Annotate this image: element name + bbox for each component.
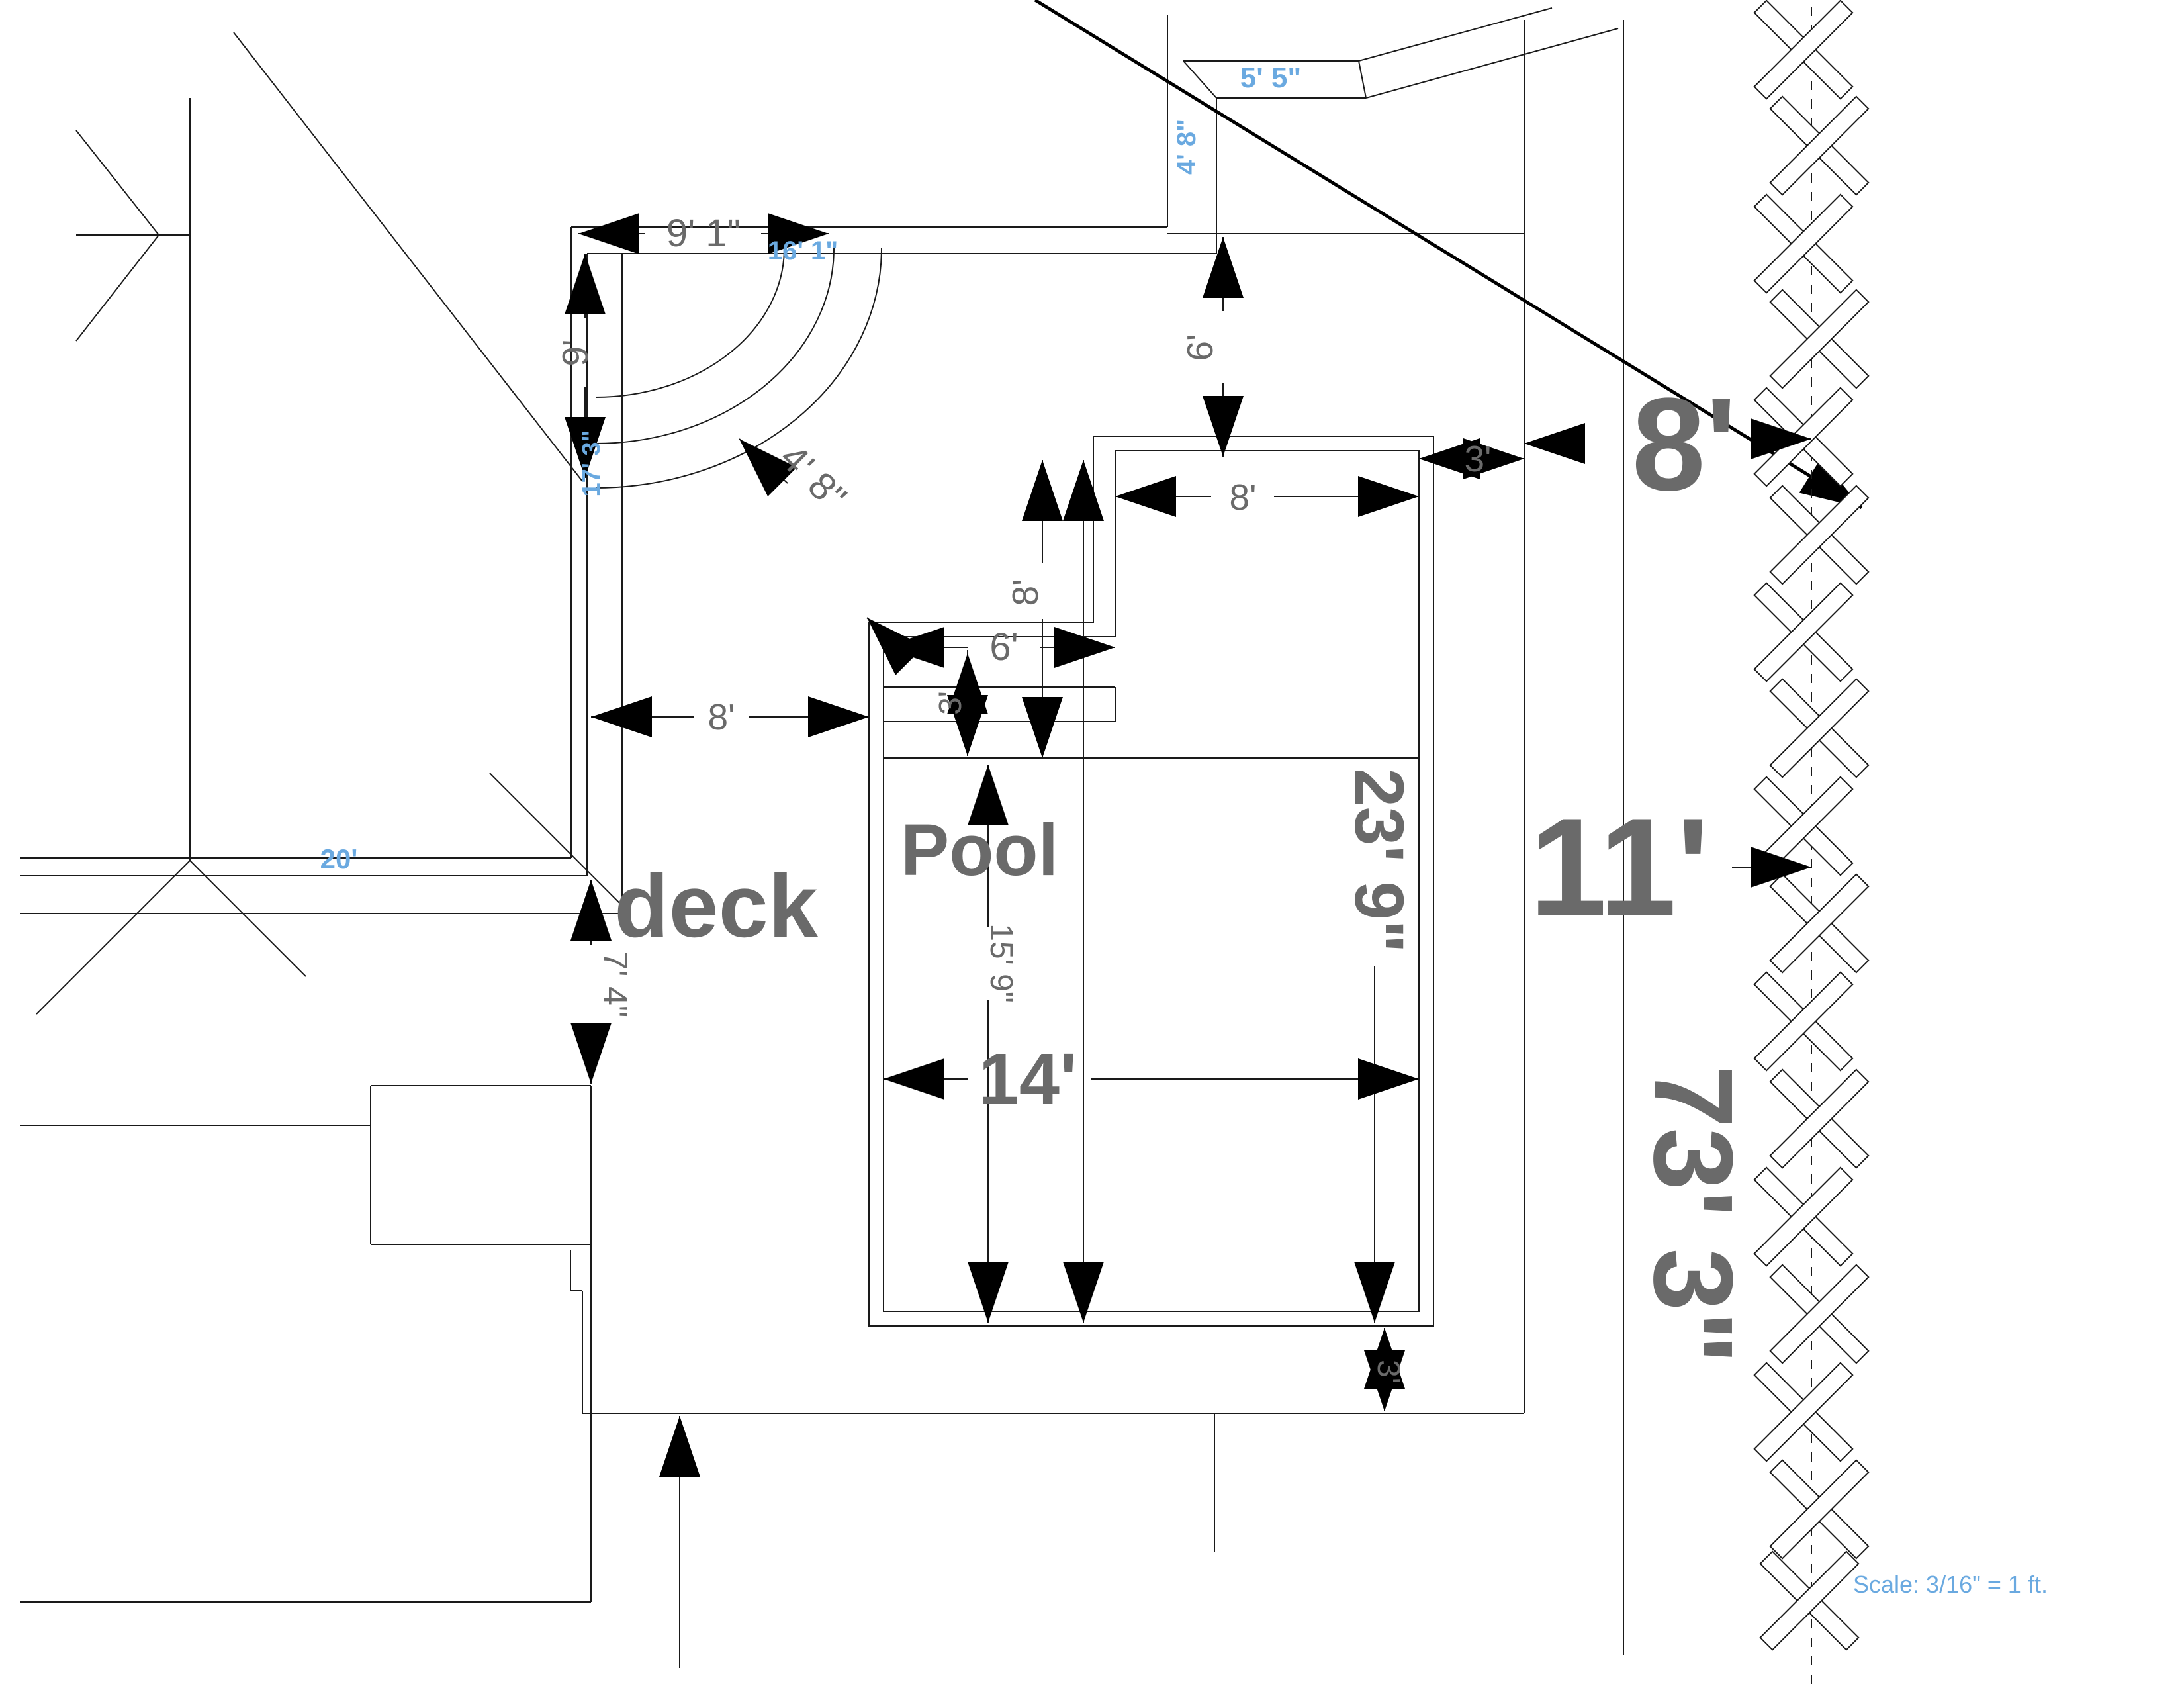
dim-top-width-alt-label: 16' 1"	[768, 236, 838, 265]
fence-x-icon	[1760, 1552, 1858, 1650]
fence-x-icon	[1770, 290, 1868, 388]
dim-step-depth-label: 3'	[933, 691, 968, 715]
dim-arrow	[808, 696, 869, 737]
dim-spa-depth: 8'	[1005, 460, 1063, 758]
dim-pool-length: 23' 9"	[1340, 768, 1418, 1323]
dim-pool-width: 14'	[884, 1039, 1419, 1120]
fence-x-icon	[1754, 583, 1852, 681]
dim-arrow	[1354, 1262, 1395, 1323]
dim-top-width: 9' 1" 16' 1"	[578, 212, 838, 265]
dim-arrow	[1115, 476, 1176, 517]
dim-deck-to-fence-mid: 11'	[1529, 789, 1811, 945]
dim-house-to-bay-label: 7' 4"	[596, 951, 634, 1018]
scale-note: Scale: 3/16" = 1 ft.	[1853, 1571, 2048, 1598]
dim-house-width: 20'	[320, 843, 358, 874]
fence-x-icon	[1754, 972, 1852, 1070]
dim-arc-radius-label: 4' 8"	[772, 436, 854, 519]
roof-corner-diagonal	[490, 773, 630, 914]
dim-arrow	[570, 1023, 612, 1084]
pool-steps	[884, 687, 1115, 722]
fence-x-icon	[1770, 1265, 1868, 1363]
dim-spa-width-label: 8'	[1229, 477, 1256, 518]
fence-x-icon	[1770, 679, 1868, 777]
dim-step-width: 6'	[884, 626, 1115, 669]
wall-left	[571, 227, 622, 914]
dim-pool-inner-length-label: 15' 9"	[983, 923, 1019, 1003]
dim-wing-width-label: 5' 5"	[1240, 62, 1302, 94]
dim-left-depth-alt-label: 17' 3"	[578, 430, 606, 496]
dim-spa-width: 8'	[1115, 476, 1419, 518]
dim-pool-length-inner-line	[1063, 460, 1104, 1323]
dim-arrow	[1022, 697, 1063, 758]
dim-arrow	[578, 213, 639, 254]
dim-top-width-label: 9' 1"	[666, 212, 741, 255]
deck-left-jog	[570, 1250, 582, 1413]
dim-arrow	[1358, 476, 1419, 517]
dim-arrow	[884, 1058, 944, 1100]
dim-spa-depth-label: 8'	[1005, 579, 1046, 606]
dim-pool-width-label: 14'	[979, 1039, 1077, 1120]
dim-pool-to-deck-bottom-label: 3'	[1371, 1360, 1406, 1383]
fence-x-icon	[1770, 874, 1868, 972]
dim-pool-length-label: 23' 9"	[1340, 768, 1418, 953]
fence-x-icon	[1754, 1168, 1852, 1266]
dim-arrow	[1063, 460, 1104, 521]
arc-inner	[596, 248, 784, 397]
dimensions: 9' 1" 16' 1" 9' 17' 3" 4' 8" 5' 5" 4' 8"…	[320, 62, 1811, 1668]
property-line	[1035, 0, 1872, 525]
dim-step-width-label: 6'	[989, 626, 1018, 669]
leader-arrow	[659, 1416, 700, 1477]
dim-arc-radius: 4' 8"	[725, 424, 925, 675]
roof-eave-diagonal	[234, 32, 582, 481]
fence-x-icon	[1770, 97, 1868, 195]
dim-arrow	[1358, 1058, 1419, 1100]
dim-left-depth-label: 9'	[555, 339, 596, 366]
dim-house-width-label: 20'	[320, 843, 358, 874]
roof-hip-lower	[36, 861, 306, 1014]
fence-x-icon	[1754, 195, 1852, 293]
roof-hip-upper	[76, 130, 190, 341]
dim-arrow	[968, 1262, 1009, 1323]
deck-label: deck	[614, 856, 819, 956]
wall-lower-wing	[20, 1086, 591, 1602]
dim-house-to-pool-label: 6'	[1179, 334, 1220, 361]
fence-x-icon	[1770, 1070, 1868, 1168]
dim-wing-depth-label: 4' 8"	[1172, 119, 1201, 175]
dim-deck-to-pool-left: 8'	[591, 696, 869, 737]
dim-deck-to-fence-mid-label: 11'	[1529, 789, 1709, 945]
fence-x-icon	[1770, 486, 1868, 584]
dim-arrow	[1203, 237, 1244, 298]
dim-left-depth: 9' 17' 3"	[555, 254, 606, 497]
door-swing-arcs	[596, 248, 882, 488]
site-plan-drawing: 9' 1" 16' 1" 9' 17' 3" 4' 8" 5' 5" 4' 8"…	[0, 0, 2184, 1688]
fence-x-icon	[1754, 1363, 1852, 1461]
dim-arrow	[1054, 627, 1115, 668]
fence-x-icon	[1754, 1, 1852, 99]
fence-x-icon	[1770, 1460, 1868, 1558]
pool-label: Pool	[901, 810, 1058, 891]
dim-property-depth: 73' 3"	[1630, 1065, 1756, 1364]
leader-lines	[659, 1413, 1214, 1668]
arc-outer	[596, 248, 882, 488]
dim-house-to-pool: 6'	[1179, 237, 1244, 457]
dim-roof-wing: 5' 5" 4' 8"	[1172, 62, 1301, 175]
arc-middle	[596, 248, 834, 444]
dim-arrow	[1524, 423, 1585, 464]
fence-line	[1754, 1, 1868, 1688]
dim-pool-to-deck-right: 3'	[1419, 438, 1524, 479]
dim-arrow	[1203, 396, 1244, 457]
dim-deck-to-pool-left-label: 8'	[707, 696, 735, 737]
site-plan-sheet: 9' 1" 16' 1" 9' 17' 3" 4' 8" 5' 5" 4' 8"…	[0, 0, 2184, 1688]
dim-arrow	[1063, 1262, 1104, 1323]
dim-arrow	[1022, 460, 1063, 521]
dim-pool-to-deck-right-label: 3'	[1464, 438, 1491, 479]
bay-window	[371, 1086, 591, 1244]
dim-property-depth-label: 73' 3"	[1630, 1065, 1756, 1364]
dim-deck-to-fence-label: 8'	[1632, 371, 1737, 518]
dim-pool-to-deck-bottom: 3'	[1364, 1328, 1406, 1411]
